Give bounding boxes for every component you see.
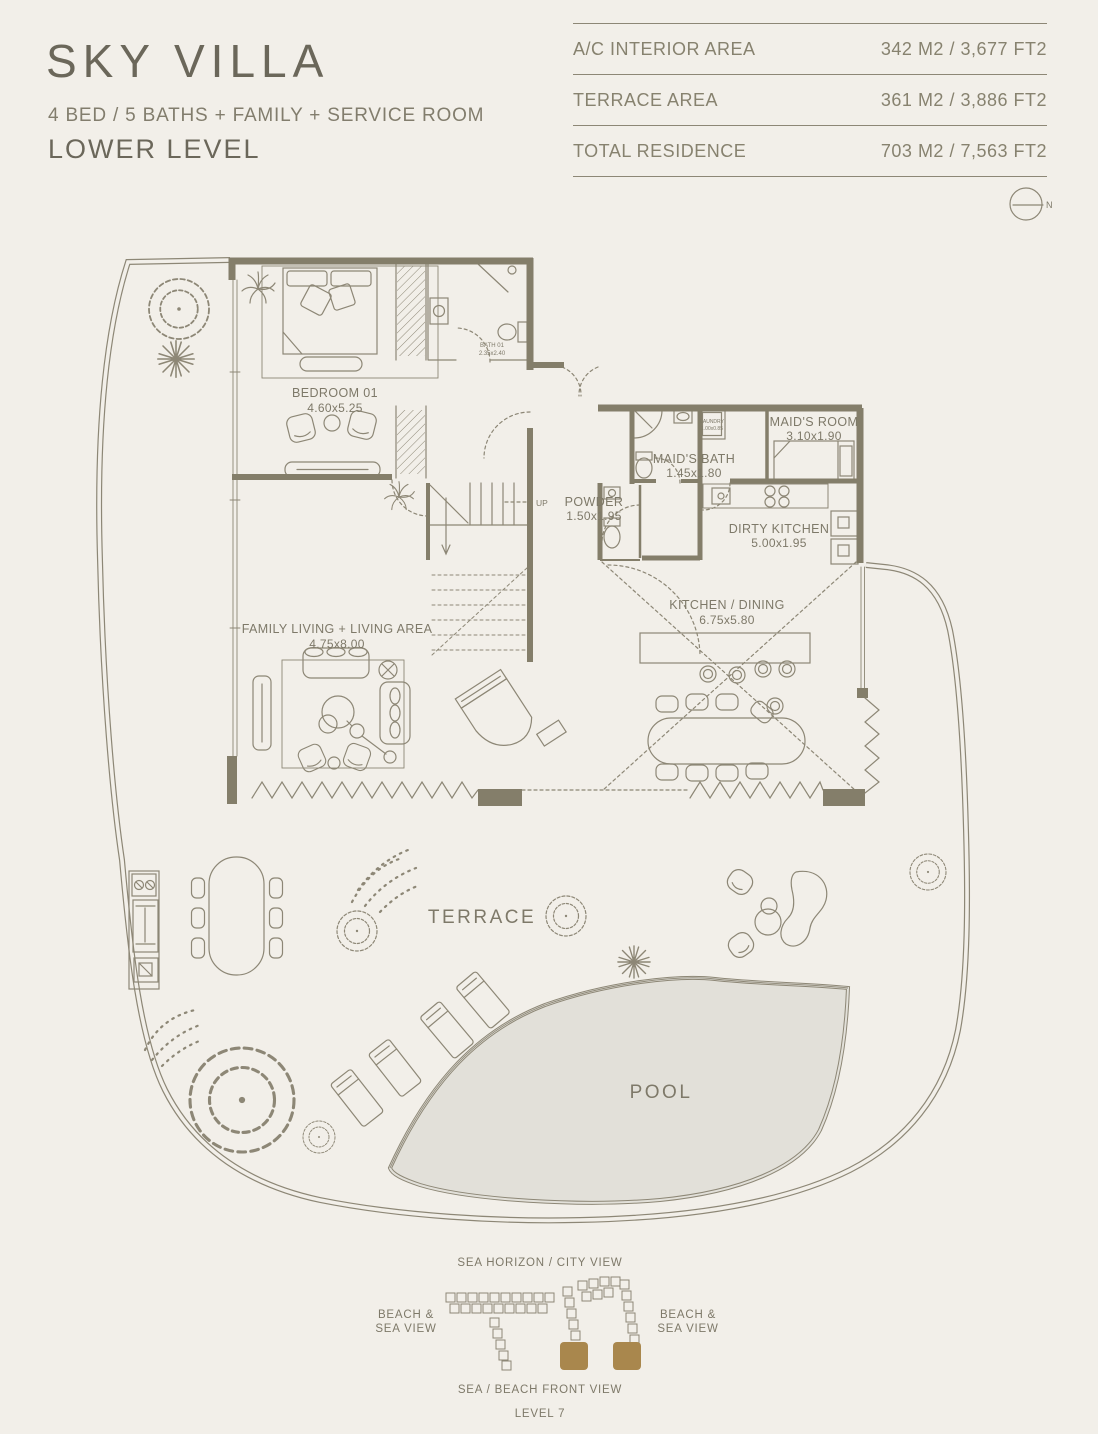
key-plan-left-label: BEACH & xyxy=(378,1309,434,1321)
room-dims-bedroom-01: 4.60x5.25 xyxy=(307,401,362,415)
room-dims-laundry: 1.00x0.85 xyxy=(701,426,723,432)
room-label-maids-bath: MAID'S BATH xyxy=(653,452,735,466)
room-dims-maids-room: 3.10x1.90 xyxy=(786,429,841,443)
stair-up-label: UP xyxy=(536,498,548,508)
room-label-family-living: FAMILY LIVING + LIVING AREA xyxy=(242,622,433,636)
room-label-bath-01: BATH 01 xyxy=(480,343,505,349)
terrace-label: TERRACE xyxy=(428,907,536,928)
floorplan-page: SKY VILLA 4 BED / 5 BATHS + FAMILY + SER… xyxy=(0,0,1098,1434)
floor-plan-drawing: BEDROOM 01 4.60x5.25 BATH 01 2.35x2.40 F… xyxy=(0,0,1098,1434)
room-label-dirty-kitchen: DIRTY KITCHEN xyxy=(729,522,830,536)
key-plan-left-label: SEA VIEW xyxy=(375,1323,436,1335)
outdoor-dining-set xyxy=(192,857,283,975)
key-plan-highlight-unit xyxy=(560,1342,588,1370)
key-plan: SEA HORIZON / CITY VIEW BEACH & SEA VIEW… xyxy=(375,1257,718,1420)
room-label-laundry: LAUNDRY xyxy=(700,419,724,425)
room-dims-family-living: 4.75x8.00 xyxy=(309,637,364,651)
wardrobe-hatch xyxy=(397,266,425,356)
room-dims-kitchen-dining: 6.75x5.80 xyxy=(699,613,754,627)
key-plan-right-label: BEACH & xyxy=(660,1309,716,1321)
pool-label: POOL xyxy=(630,1082,693,1103)
kitchen-dining-furniture xyxy=(640,633,810,781)
outdoor-kitchen xyxy=(129,871,159,989)
compass-north-label: N xyxy=(1046,200,1053,210)
grand-piano xyxy=(455,658,566,773)
key-plan-right-label: SEA VIEW xyxy=(657,1323,718,1335)
living-furniture xyxy=(253,648,410,774)
room-dims-bath-01: 2.35x2.40 xyxy=(479,351,506,357)
north-compass-icon: N xyxy=(1010,188,1053,220)
room-label-bedroom-01: BEDROOM 01 xyxy=(292,386,378,400)
wardrobe-hatch xyxy=(397,410,425,474)
room-dims-maids-bath: 1.45x1.80 xyxy=(666,466,721,480)
terrace-seating-nook xyxy=(724,866,827,961)
room-label-kitchen-dining: KITCHEN / DINING xyxy=(669,598,784,612)
key-plan-level-label: LEVEL 7 xyxy=(515,1408,566,1420)
bath-01-fixtures xyxy=(430,264,527,342)
interior-partitions xyxy=(230,262,865,756)
key-plan-building xyxy=(446,1277,639,1370)
pool xyxy=(390,978,848,1203)
staircase xyxy=(428,483,530,655)
room-dims-powder: 1.50x1.95 xyxy=(566,509,621,523)
key-plan-bottom-label: SEA / BEACH FRONT VIEW xyxy=(458,1384,622,1396)
room-dims-dirty-kitchen: 5.00x1.95 xyxy=(751,536,806,550)
maids-room-furniture xyxy=(774,441,854,481)
key-plan-top-label: SEA HORIZON / CITY VIEW xyxy=(457,1257,622,1269)
folding-glass-walls xyxy=(252,698,879,798)
room-label-maids-room: MAID'S ROOM xyxy=(770,415,859,429)
key-plan-highlight-unit xyxy=(613,1342,641,1370)
room-label-powder: POWDER xyxy=(565,495,624,509)
